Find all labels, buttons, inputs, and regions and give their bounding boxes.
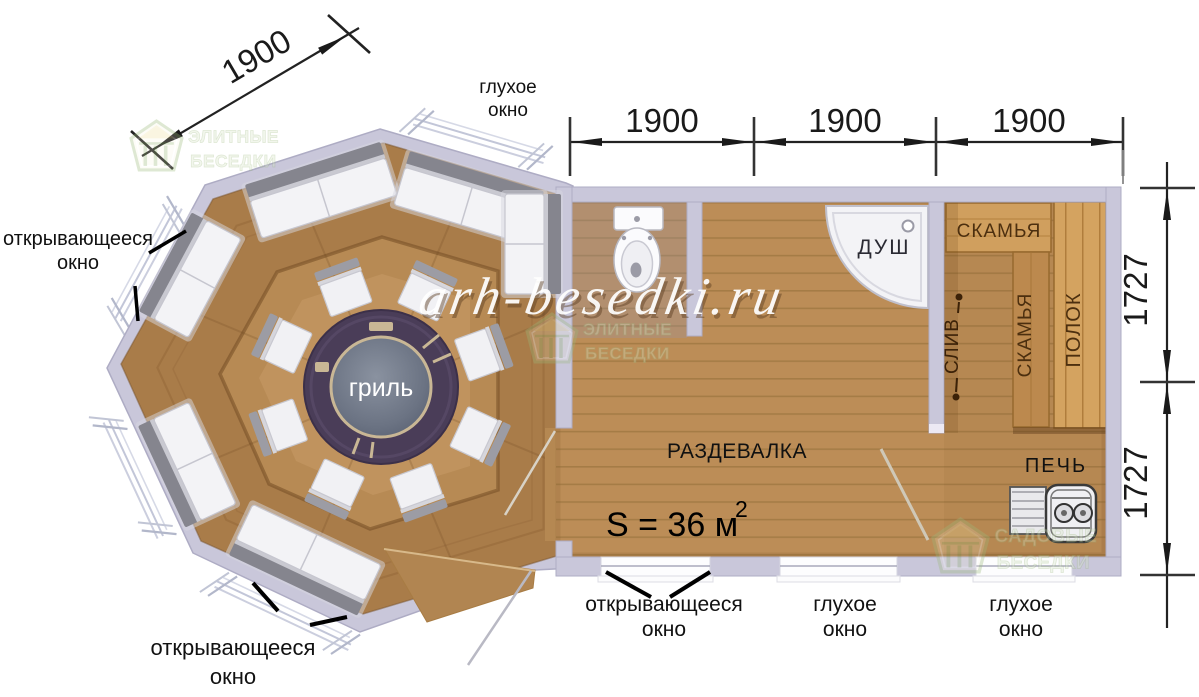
svg-text:S = 36 м: S = 36 м [606, 506, 738, 544]
svg-text:ПЕЧЬ: ПЕЧЬ [1025, 455, 1087, 477]
svg-text:окно: окно [488, 100, 528, 121]
svg-text:открывающееся: открывающееся [151, 635, 316, 660]
svg-text:ДУШ: ДУШ [857, 236, 910, 259]
svg-text:ЭЛИТНЫЕ: ЭЛИТНЫЕ [188, 126, 279, 146]
svg-text:РАЗДЕВАЛКА: РАЗДЕВАЛКА [667, 440, 807, 463]
svg-text:окно: окно [210, 664, 256, 689]
svg-text:гриль: гриль [349, 374, 414, 402]
svg-text:ЭЛИТНЫЕ: ЭЛИТНЫЕ [583, 320, 672, 339]
svg-text:окно: окно [823, 618, 867, 641]
svg-text:БЕСЕДКИ: БЕСЕДКИ [585, 344, 670, 363]
svg-text:БЕСЕДКИ: БЕСЕДКИ [997, 552, 1090, 573]
svg-text:открывающееся: открывающееся [585, 593, 742, 616]
svg-text:САДОВЫЕ: САДОВЫЕ [995, 525, 1097, 546]
svg-text:arh-besedki.ru: arh-besedki.ru [415, 266, 790, 326]
svg-text:глухое: глухое [813, 593, 877, 616]
svg-text:окно: окно [57, 252, 99, 274]
svg-text:1900: 1900 [992, 102, 1065, 139]
svg-text:открывающееся: открывающееся [3, 228, 153, 250]
svg-text:БЕСЕДКИ: БЕСЕДКИ [190, 151, 276, 171]
svg-text:1727: 1727 [1117, 253, 1154, 326]
svg-text:глухое: глухое [989, 593, 1053, 616]
svg-text:СЛИВ: СЛИВ [942, 318, 963, 374]
svg-text:1900: 1900 [808, 102, 881, 139]
svg-text:1727: 1727 [1117, 446, 1154, 519]
svg-text:глухое: глухое [479, 77, 537, 98]
svg-text:2: 2 [735, 496, 748, 522]
svg-text:1900: 1900 [625, 102, 698, 139]
svg-text:окно: окно [642, 618, 686, 641]
svg-text:окно: окно [999, 618, 1043, 641]
